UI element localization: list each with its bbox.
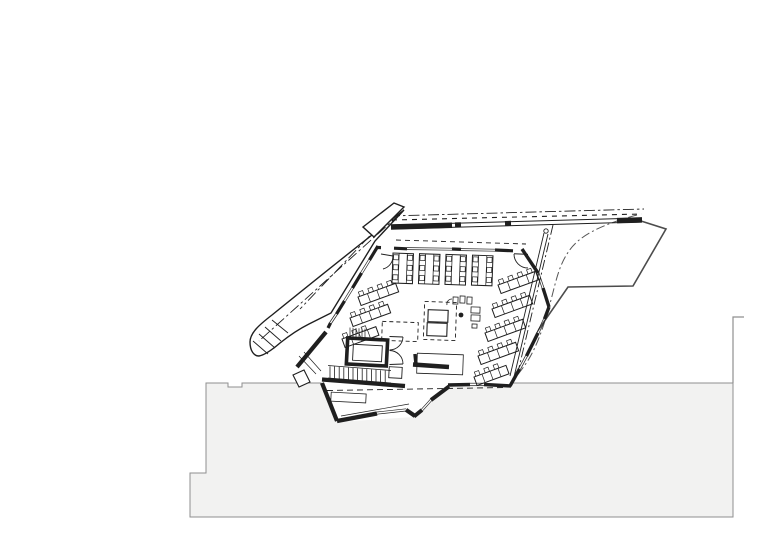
- wall: [495, 250, 513, 251]
- wall: [448, 385, 470, 386]
- canopy-bar: [391, 225, 452, 227]
- canopy-bar: [617, 220, 642, 221]
- wall: [394, 248, 407, 249]
- door-leaf-lobby: [390, 337, 404, 338]
- door-leaf-ne: [514, 254, 528, 255]
- roof-dash-north: [396, 240, 526, 244]
- terrain: [190, 383, 733, 517]
- architectural-floor-plan: [0, 0, 768, 543]
- door-leaf-lobby: [390, 364, 404, 365]
- column: [459, 313, 464, 318]
- downpipe-cap: [544, 229, 548, 233]
- wall: [328, 323, 331, 328]
- terrain-step: [733, 317, 744, 383]
- partition-wall: [413, 365, 449, 368]
- wall: [484, 385, 511, 387]
- floor-plan-svg: [0, 0, 768, 543]
